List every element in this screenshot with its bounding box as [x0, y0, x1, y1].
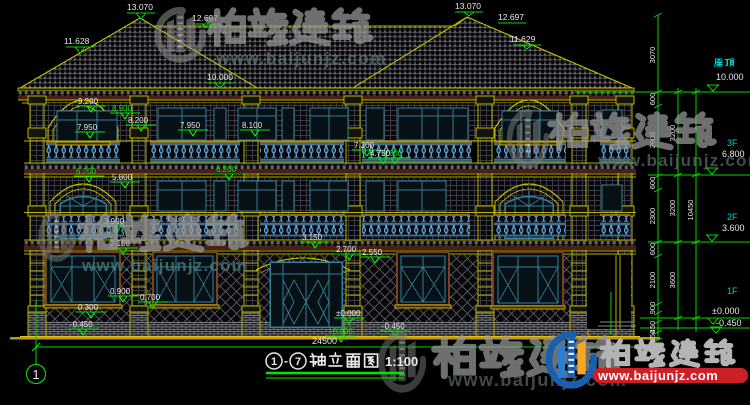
svg-text:24500: 24500 [312, 336, 337, 346]
svg-text:600: 600 [648, 93, 657, 106]
svg-text:600: 600 [648, 243, 657, 256]
svg-text:+0.000: +0.000 [328, 327, 353, 336]
svg-text:1F: 1F [727, 286, 738, 296]
svg-text:3F: 3F [727, 138, 738, 148]
svg-text:10450: 10450 [686, 200, 695, 221]
svg-text:7.950: 7.950 [180, 121, 201, 130]
svg-text:8.200: 8.200 [128, 116, 149, 125]
svg-text:3070: 3070 [648, 47, 657, 64]
svg-text:www.baijunjz.com: www.baijunjz.com [81, 256, 248, 275]
svg-text:9.200: 9.200 [78, 97, 99, 106]
svg-text:13.070: 13.070 [127, 2, 153, 12]
svg-text:900: 900 [648, 302, 657, 315]
svg-text:-0.450: -0.450 [70, 320, 93, 329]
svg-text:1:100: 1:100 [385, 354, 418, 369]
svg-text:-0.450: -0.450 [382, 322, 405, 331]
svg-text:11.628: 11.628 [64, 36, 90, 46]
svg-text:3.150: 3.150 [302, 233, 323, 242]
svg-text:2.700: 2.700 [336, 245, 357, 254]
svg-text:www.baijunjz.com: www.baijunjz.com [215, 49, 387, 68]
svg-text:www.baijunjz.com: www.baijunjz.com [597, 151, 750, 170]
svg-text:11.629: 11.629 [510, 34, 536, 44]
svg-text:10.000: 10.000 [716, 72, 744, 82]
svg-text:0.700: 0.700 [140, 293, 161, 302]
svg-text:10.000: 10.000 [207, 72, 233, 82]
svg-text:3.600: 3.600 [722, 223, 745, 233]
svg-text:13.070: 13.070 [455, 1, 481, 11]
svg-text:12.697: 12.697 [498, 12, 524, 22]
svg-text:0.900: 0.900 [110, 287, 131, 296]
svg-text:2100: 2100 [648, 272, 657, 289]
svg-text:2.550: 2.550 [362, 248, 383, 257]
svg-text:7: 7 [295, 356, 301, 368]
svg-text:-0.450: -0.450 [716, 318, 742, 328]
svg-text:4.750: 4.750 [370, 149, 391, 158]
svg-text:8.900: 8.900 [112, 104, 133, 113]
svg-text:6.200: 6.200 [76, 167, 97, 176]
svg-text:2300: 2300 [648, 208, 657, 225]
svg-text:5.800: 5.800 [112, 173, 133, 182]
svg-text:-: - [284, 354, 288, 368]
svg-text:6.200: 6.200 [216, 165, 237, 174]
svg-text:±0.000: ±0.000 [336, 309, 361, 318]
svg-text:600: 600 [648, 177, 657, 190]
svg-text:www.baijunjz.com: www.baijunjz.com [597, 368, 718, 383]
svg-text:0.300: 0.300 [78, 303, 99, 312]
svg-text:3600: 3600 [668, 272, 677, 289]
svg-text:3200: 3200 [668, 200, 677, 217]
svg-text:2F: 2F [727, 212, 738, 222]
svg-text:8.100: 8.100 [242, 121, 263, 130]
svg-text:1: 1 [271, 356, 277, 368]
svg-text:1: 1 [32, 367, 39, 382]
svg-text:7.950: 7.950 [77, 123, 98, 132]
svg-text:±0.000: ±0.000 [712, 306, 739, 316]
